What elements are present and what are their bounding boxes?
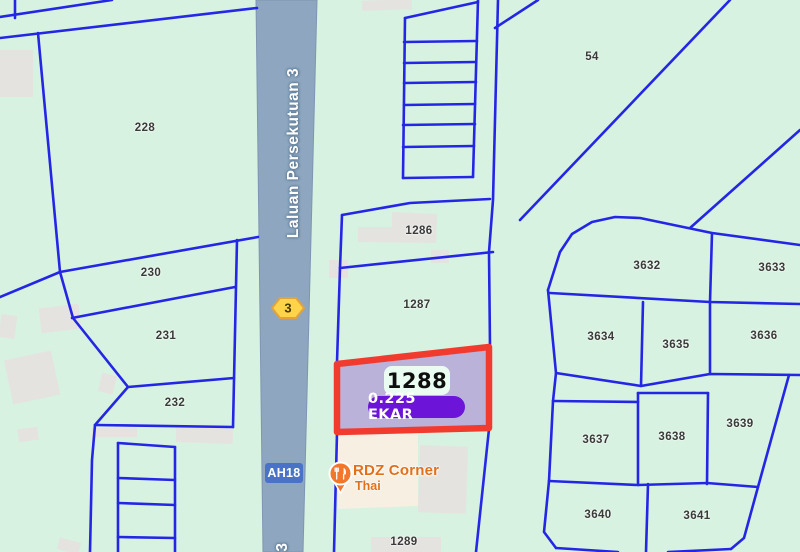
poi-subtitle[interactable]: Thai	[355, 479, 381, 493]
road-name-label: Laluan Persekutuan 3	[285, 43, 303, 263]
route-shield-number: 3	[284, 301, 291, 316]
poi-name[interactable]: RDZ Corner	[353, 462, 439, 479]
parcel-label-3638: 3638	[658, 431, 685, 443]
parcel-label-3641: 3641	[683, 510, 710, 522]
map-canvas[interactable]: 2282302312325412861287128936323633363436…	[0, 0, 800, 552]
route-shield: 3	[271, 296, 305, 320]
parcel-label-1287: 1287	[403, 299, 430, 311]
parcel-label-3633: 3633	[758, 262, 785, 274]
parcel-label-1289: 1289	[390, 536, 417, 548]
road-bottom-label: 3	[274, 527, 292, 552]
parcel-label-3634: 3634	[587, 331, 614, 343]
parcel-label-228: 228	[135, 122, 155, 134]
parcel-label-230: 230	[141, 267, 161, 279]
route-code-badge: AH18	[265, 463, 303, 483]
parcel-label-3636: 3636	[750, 330, 777, 342]
parcel-label-232: 232	[165, 397, 185, 409]
parcel-label-1286: 1286	[405, 225, 432, 237]
lot-area-badge: 0.225 EKAR	[368, 396, 465, 418]
restaurant-icon[interactable]	[327, 461, 354, 495]
parcel-label-231: 231	[156, 330, 176, 342]
parcel-label-3637: 3637	[582, 434, 609, 446]
parcel-label-54: 54	[585, 51, 599, 63]
parcel-label-3639: 3639	[726, 418, 753, 430]
parcel-label-3632: 3632	[633, 260, 660, 272]
parcel-label-3635: 3635	[662, 339, 689, 351]
parcel-label-3640: 3640	[584, 509, 611, 521]
